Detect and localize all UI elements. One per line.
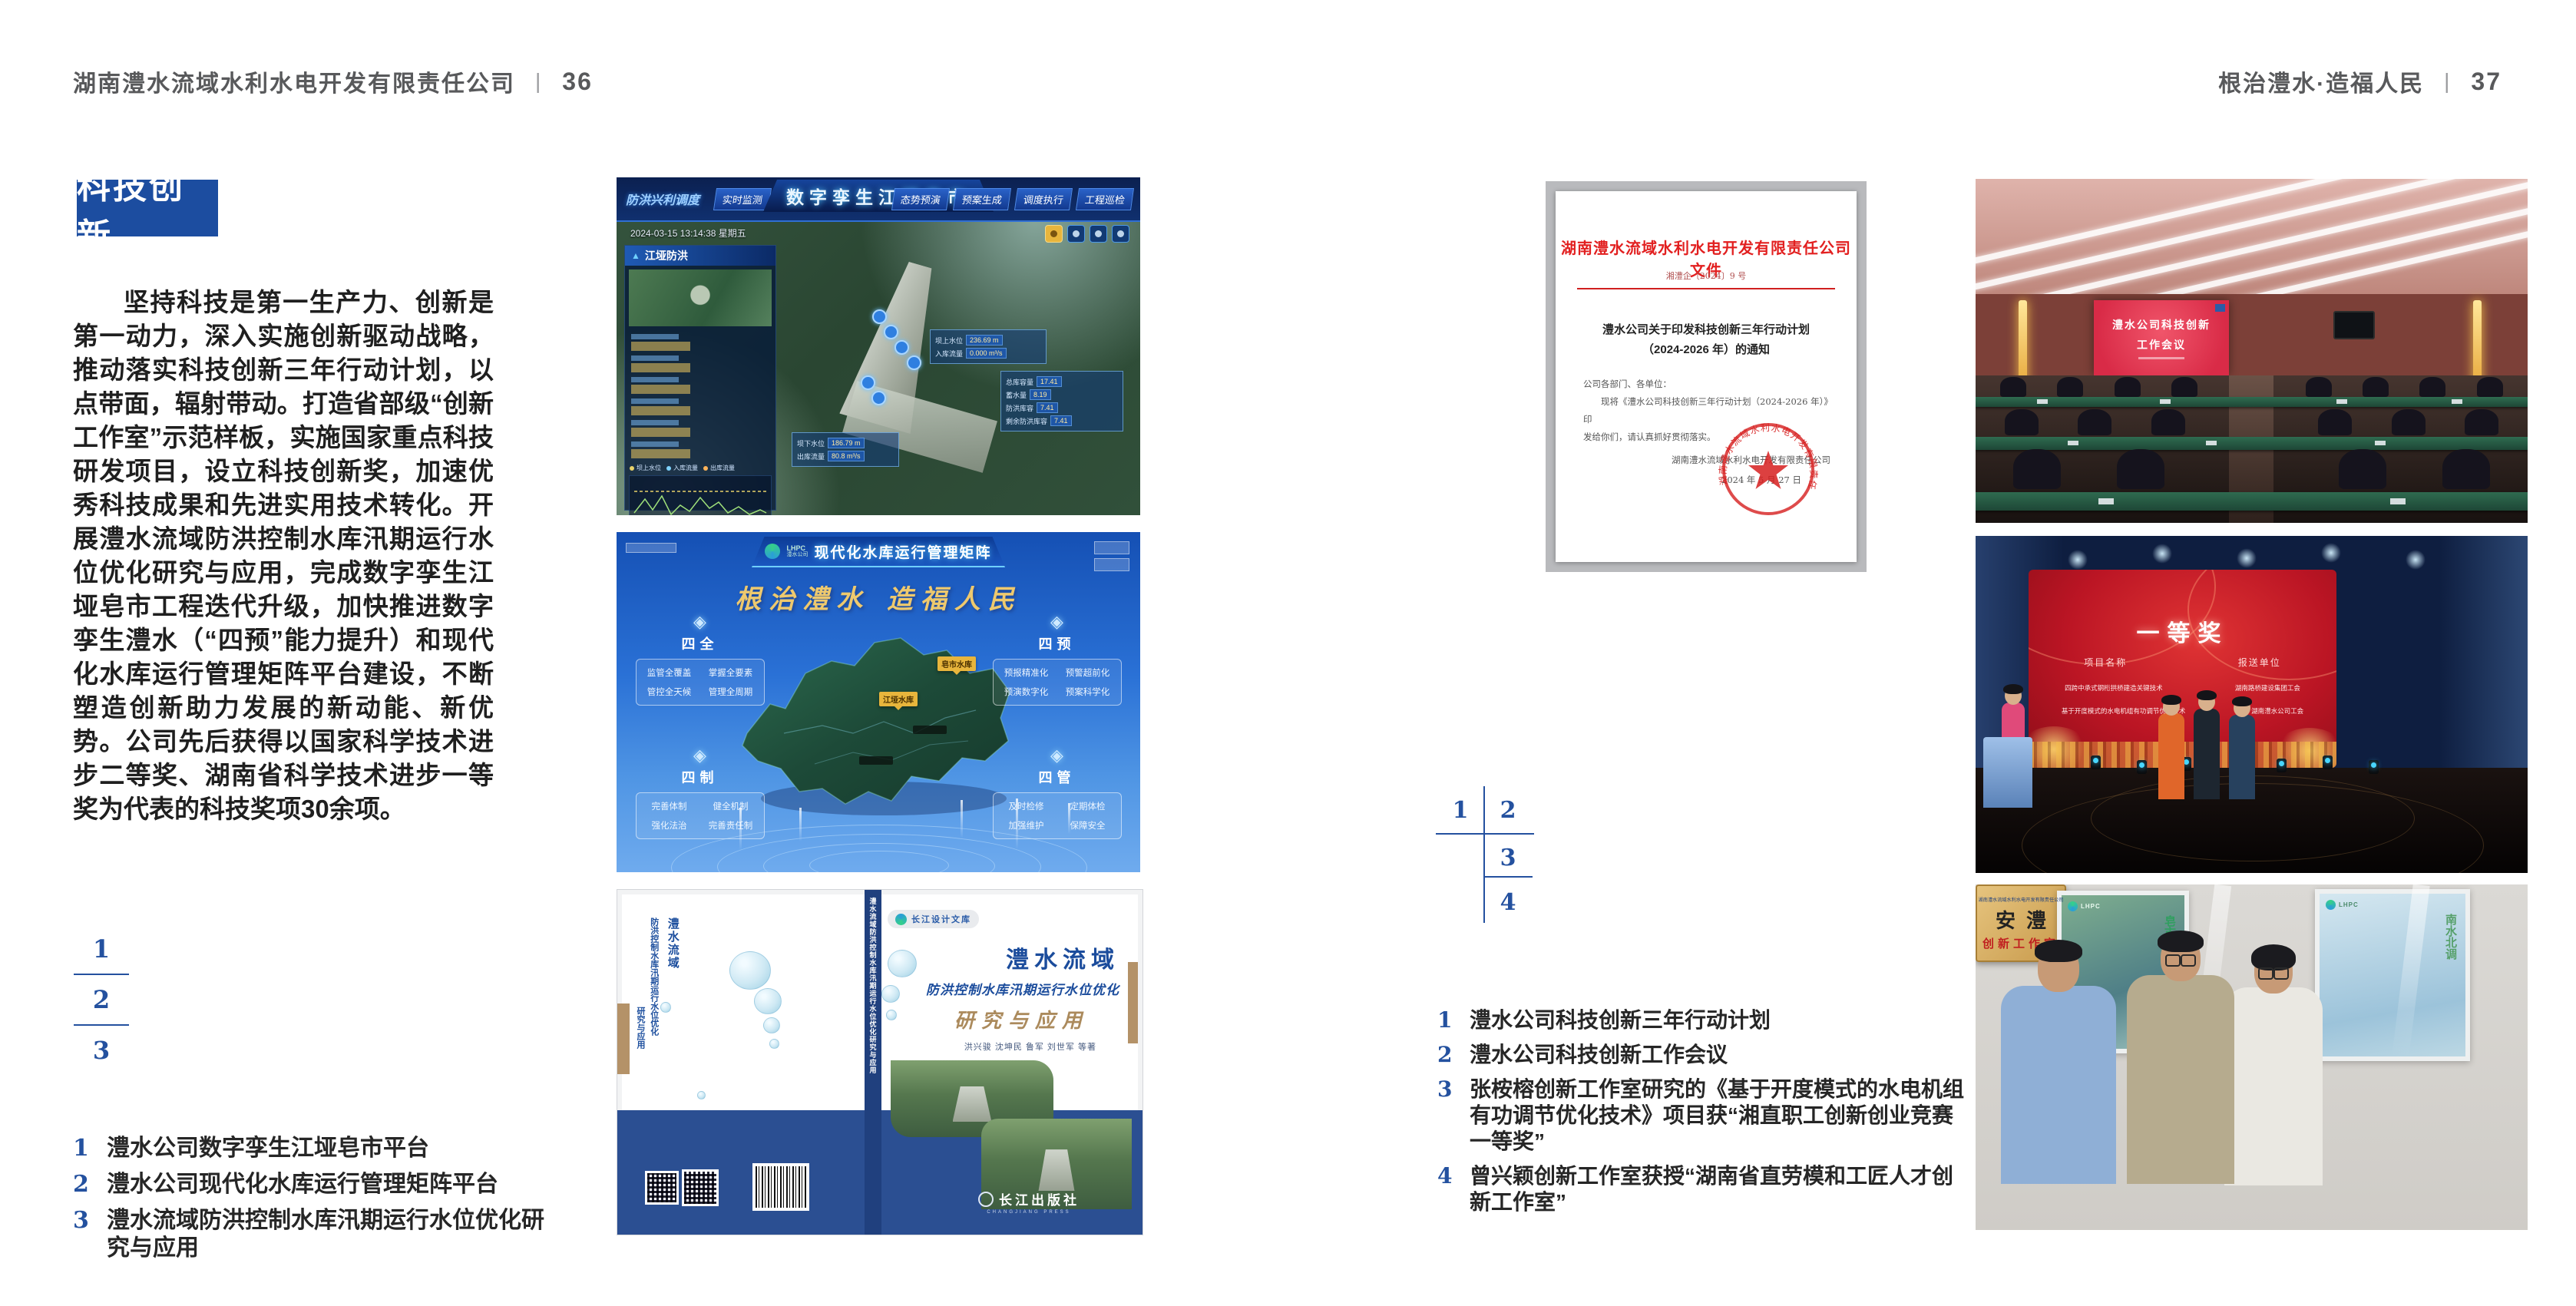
marker-divider	[74, 974, 129, 975]
stage-light	[2321, 543, 2341, 563]
document-title: 澧水公司关于印发科技创新三年行动计划 （2024-2026 年）的通知	[1556, 320, 1857, 360]
mode-label: 防洪兴利调度	[626, 190, 699, 208]
tab-plan-generation: 预案生成	[953, 188, 1011, 210]
stat-cell	[631, 377, 699, 394]
figure-marker: 1	[93, 934, 110, 964]
moving-head-light	[2369, 760, 2379, 774]
moving-head-light	[2091, 755, 2101, 769]
figure-official-document: 湖南澧水流域水利水电开发有限责任公司文件 湘澧企〔2024〕9 号 澧水公司关于…	[1546, 181, 1867, 572]
caption-text: 澧水公司现代化水库运行管理矩阵平台	[107, 1171, 564, 1199]
desk-row	[1976, 437, 2528, 450]
stage-light	[2152, 544, 2172, 564]
unit-marker-icon	[871, 391, 886, 405]
figure-marker: 2	[93, 985, 110, 1014]
tooltip-downstream: 坝下水位186.79 m 出库流量80.8 m³/s	[792, 432, 899, 467]
stat-cell	[631, 355, 699, 372]
back-tan-block	[617, 1003, 630, 1074]
figure-award-photo: 一等奖 项目名称报送单位 四跨中承式钢桁拱桥建造关键技术湖南路桥建设集团工会 基…	[1976, 536, 2528, 873]
caption-text: 澧水流域防洪控制水库汛期运行水位优化研究与应用	[107, 1207, 564, 1262]
marker-divider	[74, 1024, 129, 1026]
caption-number: 3	[73, 1207, 107, 1262]
timestamp: 2024-03-15 13:14:38 星期五	[630, 226, 746, 240]
moving-head-light	[2323, 755, 2333, 769]
bubble-graphic	[769, 1039, 779, 1049]
caption-row: 2 澧水公司科技创新工作会议	[1437, 1042, 1967, 1068]
map-station-chip	[913, 726, 947, 734]
front-title-tail: 研究与应用	[954, 1005, 1089, 1033]
panel-title: 江垭防洪	[645, 248, 688, 263]
podium	[1983, 737, 2032, 808]
qr-code	[682, 1169, 719, 1206]
bubble-graphic	[763, 1017, 780, 1033]
caption-row: 1 澧水公司数字孪生江垭皂市平台	[73, 1135, 564, 1162]
cube-icon: ◈	[1050, 612, 1063, 632]
back-title-tail: 研究与应用	[634, 1007, 646, 1049]
tab-realtime-monitoring: 实时监测	[713, 188, 772, 210]
screen-logo-icon	[2215, 304, 2225, 312]
moving-head-light	[2137, 760, 2147, 774]
caption-text: 曾兴颖创新工作室获授“湖南省直劳模和工匠人才创新工作室”	[1470, 1163, 1967, 1215]
book-spine: 澧水流域防洪控制水库汛期运行水位优化研究与应用	[865, 890, 881, 1235]
caption-text: 澧水公司科技创新工作会议	[1470, 1042, 1967, 1068]
publisher-block: 长江出版社 CHANGJIANG PRESS	[978, 1189, 1080, 1215]
person-blue-shirt	[1997, 944, 2120, 1230]
legend-item: 坝上水位	[630, 464, 661, 472]
bubble-graphic	[697, 1091, 706, 1099]
document-number: 湘澧企〔2024〕9 号	[1556, 269, 1857, 282]
light-pillar	[799, 808, 802, 841]
map-label-jiangya: 江垭水库	[879, 692, 918, 706]
award-title: 一等奖	[2029, 614, 2336, 648]
tooltip-upstream: 坝上水位236.69 m 入库流量0.000 m³/s	[930, 329, 1047, 364]
caption-number: 2	[1437, 1042, 1470, 1068]
caption-number: 4	[1437, 1163, 1470, 1215]
changjiang-logo-icon	[895, 914, 907, 925]
figure-digital-twin-dashboard: 防洪兴利调度 实时监测 洪水预报 防洪预警 数字孪生江垭皂市 态势预演 预案生成…	[617, 177, 1140, 515]
panel-header: ▲江垭防洪	[625, 246, 775, 266]
stat-cell	[631, 441, 699, 458]
series-badge: 长江设计文库	[888, 910, 979, 928]
tooltip-reservoir-stats: 总库容量17.41 蓄水量8.19 防洪库容7.41 剩余防洪库容7.41	[1000, 371, 1123, 431]
stat-grid	[625, 330, 775, 462]
sun-icon	[1045, 225, 1063, 243]
stat-cell	[631, 334, 699, 351]
wind-icon	[1112, 225, 1129, 243]
weather-icon-group	[1045, 225, 1129, 243]
caption-number: 1	[1437, 1007, 1470, 1033]
tab-project-inspection: 工程巡检	[1076, 188, 1134, 210]
marker-hline	[1483, 876, 1533, 878]
figure-marker: 3	[1500, 845, 1516, 871]
bubble-graphic	[881, 985, 900, 1003]
left-stats-panel: ▲江垭防洪 坝上水位 入库流量 出库流量 ▲江垭发电	[624, 245, 776, 511]
award-row: 四跨中承式钢桁拱桥建造关键技术湖南路桥建设集团工会	[2029, 683, 2336, 693]
front-title-main: 澧水流域	[1006, 941, 1119, 974]
wall-lamp	[2019, 300, 2027, 386]
stage-light	[2406, 550, 2426, 570]
figure-marker: 4	[1500, 889, 1516, 916]
unit-marker-icon	[861, 375, 875, 390]
screen-title-line2: 工作会议	[2137, 337, 2186, 352]
logo-text: LHPC澧水公司	[786, 545, 808, 557]
light-pillar	[1016, 798, 1018, 849]
light-pillar	[961, 800, 963, 838]
screen-title-line1: 澧水公司科技创新	[2112, 317, 2211, 332]
header-divider: |	[2444, 69, 2451, 94]
bubble-graphic	[754, 988, 782, 1014]
marker-vline	[1483, 786, 1485, 923]
qr-code	[645, 1171, 679, 1205]
presenter-suit	[2194, 693, 2220, 799]
caption-text: 澧水公司数字孪生江垭皂市平台	[107, 1135, 564, 1162]
tab-dispatch-execution: 调度执行	[1014, 188, 1073, 210]
figure-marker-list-left: 1 2 3	[74, 934, 129, 1065]
unit-marker-icon	[884, 325, 898, 339]
panel-siyu: ◈ 四预 预报精准化预警超前化预演数字化预案科学化	[994, 612, 1120, 706]
plaque-company-line: 湖南澧水流域水利水电开发有限责任公司	[1979, 896, 2064, 903]
stage-light	[2068, 550, 2088, 570]
figure-marker: 2	[1500, 797, 1516, 824]
meeting-screen: 澧水公司科技创新 工作会议	[2094, 300, 2229, 375]
basin-terrain-map	[738, 618, 1020, 824]
lhpc-logo-icon	[2326, 900, 2336, 910]
panel-header-icon: ▲	[631, 250, 640, 261]
poster-nanshui: LHPC 南水北调	[2315, 889, 2470, 1061]
date-chip	[626, 543, 676, 553]
cube-icon: ◈	[1050, 746, 1063, 765]
panel-siquan: ◈ 四全 监管全覆盖掌握全要素管控全天候管理全周期	[637, 612, 763, 706]
figure-marker-grid-right: 1 2 3 4	[1434, 780, 1536, 927]
tab-situation-rehearsal: 态势预演	[891, 188, 950, 210]
figure-meeting-photo: 澧水公司科技创新 工作会议	[1976, 179, 2528, 523]
caption-row: 2 澧水公司现代化水库运行管理矩阵平台	[73, 1171, 564, 1199]
tab-group-right: 态势预演 预案生成 调度执行 工程巡检	[893, 188, 1133, 210]
desk-row	[1976, 492, 2528, 511]
award-column-headers: 项目名称报送单位	[2029, 656, 2336, 669]
matrix-header: LHPC澧水公司 现代化水库运行管理矩阵	[752, 537, 1005, 567]
caption-list-left: 1 澧水公司数字孪生江垭皂市平台 2 澧水公司现代化水库运行管理矩阵平台 3 澧…	[73, 1135, 564, 1271]
bubble-graphic	[888, 950, 917, 977]
wall-screen	[2333, 311, 2375, 339]
company-name: 湖南澧水流域水利水电开发有限责任公司	[73, 64, 515, 98]
plaque-main-text: 安澧	[1985, 905, 2057, 934]
slogan-calligraphy: 根治澧水 造福人民	[735, 578, 1022, 616]
caption-list-right: 1 澧水公司科技创新三年行动计划 2 澧水公司科技创新工作会议 3 张桉榕创新工…	[1437, 1007, 1967, 1224]
awardee-navy	[2229, 699, 2255, 799]
document-page: 湖南澧水流域水利水电开发有限责任公司文件 湘澧企〔2024〕9 号 澧水公司关于…	[1556, 191, 1857, 562]
unit-marker-icon	[872, 309, 887, 324]
caption-row: 1 澧水公司科技创新三年行动计划	[1437, 1007, 1967, 1033]
matrix-title: 现代化水库运行管理矩阵	[814, 541, 991, 562]
header-divider: |	[535, 69, 542, 94]
awardee-orange	[2158, 697, 2184, 799]
attendee-row	[1976, 377, 2528, 397]
legend-item: 入库流量	[666, 464, 698, 472]
publisher-logo-icon	[978, 1192, 994, 1207]
attendee-row	[1976, 409, 2528, 435]
cube-icon: ◈	[693, 612, 706, 632]
front-title-sub: 防洪控制水库汛期运行水位优化	[926, 979, 1119, 998]
caption-row: 3 张桉榕创新工作室研究的《基于开度模式的水电机组有功调节优化技术》项目获“湘直…	[1437, 1076, 1967, 1155]
wall-lamp	[2473, 300, 2482, 386]
marker-hline	[1436, 833, 1534, 835]
mini-line-chart	[629, 475, 772, 515]
slogan-text: 根治澧水·造福人民	[2218, 64, 2424, 98]
aerial-photo-thumb	[629, 269, 772, 326]
page-number-right: 37	[2471, 68, 2502, 96]
light-pillar	[1068, 803, 1070, 834]
figure-matrix-platform: LHPC澧水公司 现代化水库运行管理矩阵 根治澧水 造福人民 皂市水库 江垭水库…	[617, 532, 1140, 872]
caption-row: 3 澧水流域防洪控制水库汛期运行水位优化研究与应用	[73, 1207, 564, 1262]
stage-light	[2237, 548, 2257, 568]
panel-sizhi: ◈ 四制 完善体制健全机制强化法治完善责任制	[637, 746, 763, 839]
body-paragraph: 坚持科技是第一生产力、创新是第一动力，深入实施创新驱动战略，推动落实科技创新三年…	[73, 286, 494, 826]
unit-marker-icon	[894, 340, 909, 355]
cube-icon: ◈	[693, 746, 706, 765]
bubble-graphic	[729, 951, 771, 990]
bubble-graphic	[886, 1010, 897, 1020]
back-cover-title: 防洪控制水库汛期运行水位优化 澧水流域	[648, 918, 681, 1036]
caption-number: 3	[1437, 1076, 1470, 1155]
red-seal: 湖南澧水流域水利水电开发有限责任公司	[1711, 411, 1826, 526]
authors-line: 洪兴骏 沈坤民 鲁军 刘世军 等著	[964, 1040, 1096, 1053]
back-wall	[1976, 294, 2528, 382]
left-page-header: 湖南澧水流域水利水电开发有限责任公司 | 36	[73, 64, 593, 98]
ceiling	[1976, 179, 2528, 308]
red-rule	[1577, 288, 1835, 289]
figure-group-photo: LHPC 皂市水库 LHPC 南水北调 湖南澧水流域水利水电开发有限责任公司 安…	[1976, 884, 2528, 1230]
screen-subline	[2138, 357, 2184, 359]
legend-item: 出库流量	[703, 464, 735, 472]
figure-book-cover: 防洪控制水库汛期运行水位优化 澧水流域 研究与应用 澧水流域防洪控制水库汛期运行…	[617, 889, 1143, 1235]
stat-cell	[631, 420, 699, 437]
temperature-icon	[1067, 225, 1085, 243]
caption-text: 澧水公司科技创新三年行动计划	[1470, 1007, 1967, 1033]
light-pillar	[739, 808, 742, 851]
stat-cell	[631, 398, 699, 415]
caption-number: 1	[73, 1135, 107, 1162]
panel-siguan: ◈ 四管 及时检修定期体检加强维护保障安全	[994, 746, 1120, 839]
map-station-chip	[859, 756, 893, 765]
chart-legend: 坝上水位 入库流量 出库流量	[625, 462, 775, 474]
toolbar-chip	[1094, 541, 1129, 554]
right-page-header: 根治澧水·造福人民 | 37	[2218, 64, 2502, 98]
company-logo-icon	[765, 544, 780, 559]
desk-row	[1976, 397, 2528, 407]
barcode	[752, 1163, 809, 1211]
poster-title-vertical: 南水北调	[2443, 914, 2459, 960]
map-label-zaoshi: 皂市水库	[937, 656, 976, 671]
bubble-graphic	[660, 1002, 671, 1013]
humidity-icon	[1090, 225, 1107, 243]
figure-marker: 1	[1453, 797, 1469, 824]
attendee-row	[1976, 449, 2528, 489]
moving-head-light	[2277, 759, 2287, 772]
caption-text: 张桉榕创新工作室研究的《基于开度模式的水电机组有功调节优化技术》项目获“湘直职工…	[1470, 1076, 1967, 1155]
caption-row: 4 曾兴颖创新工作室获授“湖南省直劳模和工匠人才创新工作室”	[1437, 1163, 1967, 1215]
front-tan-bar	[1128, 962, 1138, 1043]
unit-marker-icon	[907, 355, 921, 370]
page-number-left: 36	[562, 68, 593, 96]
person-khaki-shirt	[2123, 935, 2238, 1230]
caption-number: 2	[73, 1171, 107, 1199]
lhpc-logo-icon	[2068, 901, 2078, 911]
toolbar-chip	[1094, 558, 1129, 571]
figure-marker: 3	[93, 1036, 110, 1065]
section-badge: 科技创新	[77, 180, 218, 236]
